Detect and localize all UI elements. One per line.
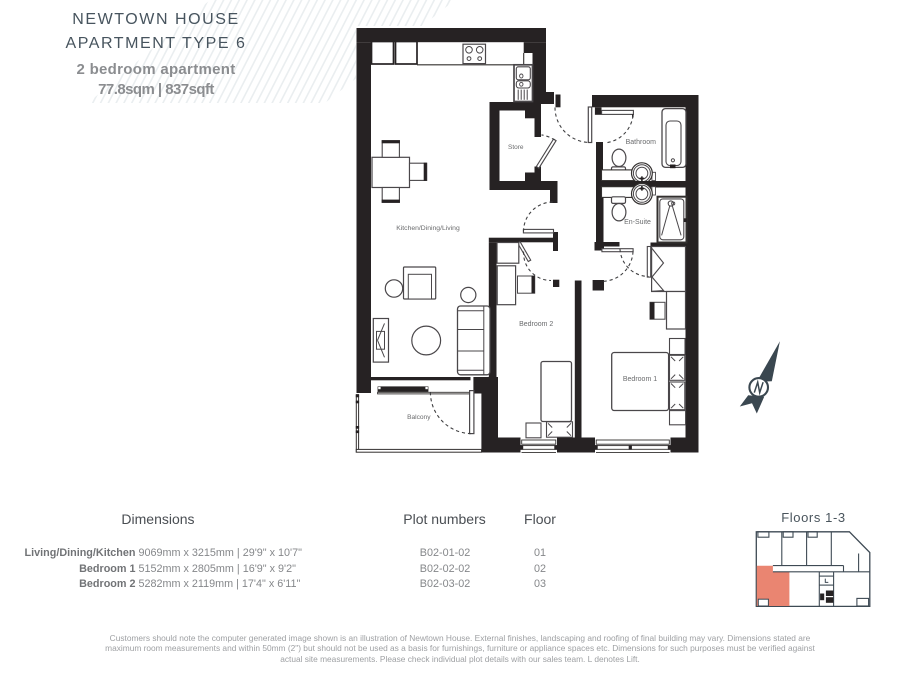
svg-text:Bedroom 1: Bedroom 1 [623, 376, 657, 383]
svg-text:Balcony: Balcony [407, 414, 431, 421]
svg-text:Kitchen/Dining/Living: Kitchen/Dining/Living [396, 225, 460, 232]
svg-text:Bedroom 2: Bedroom 2 [519, 321, 553, 328]
svg-text:En-Suite: En-Suite [624, 219, 651, 226]
svg-text:Bathroom: Bathroom [626, 139, 657, 146]
svg-text:Store: Store [508, 144, 524, 151]
